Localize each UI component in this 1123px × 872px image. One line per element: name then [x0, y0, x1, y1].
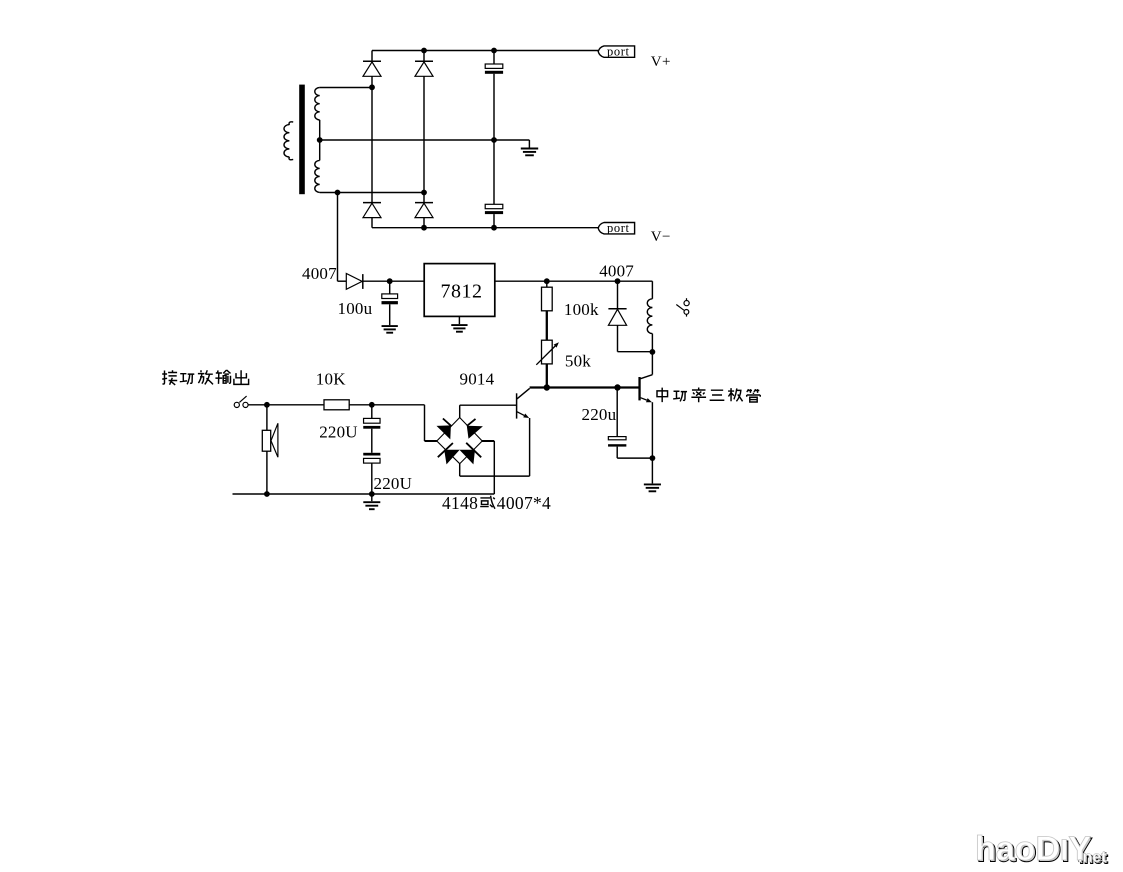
svg-text:50k: 50k — [565, 352, 591, 371]
svg-text:10K: 10K — [316, 369, 346, 388]
svg-text:220U: 220U — [319, 423, 358, 442]
svg-text:haoDIY: haoDIY — [975, 830, 1091, 868]
svg-text:4007: 4007 — [599, 262, 634, 281]
svg-text:100u: 100u — [338, 299, 373, 318]
svg-text:220u: 220u — [582, 405, 617, 424]
svg-text:4007: 4007 — [302, 264, 337, 283]
svg-text:4148: 4148 — [442, 493, 478, 513]
svg-text:V−: V− — [651, 229, 671, 245]
svg-text:4007*4: 4007*4 — [497, 493, 551, 513]
svg-text:.net: .net — [1078, 849, 1107, 866]
svg-text:100k: 100k — [564, 300, 599, 319]
svg-text:port: port — [607, 221, 630, 235]
svg-text:port: port — [607, 45, 630, 59]
svg-text:9014: 9014 — [460, 369, 495, 388]
svg-text:7812: 7812 — [441, 280, 483, 302]
svg-text:V+: V+ — [651, 54, 671, 70]
svg-text:220U: 220U — [374, 474, 413, 493]
